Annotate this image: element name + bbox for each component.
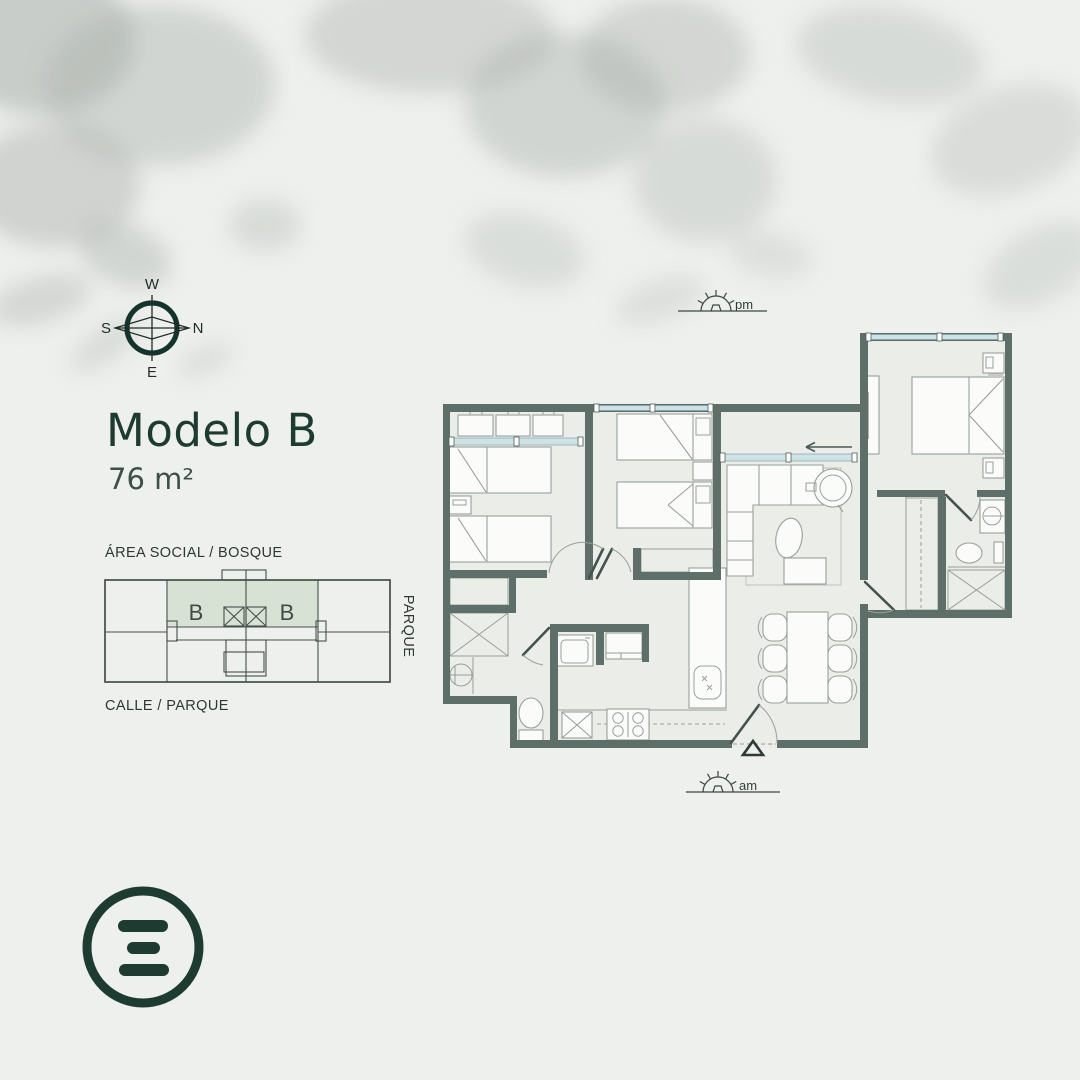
dresser <box>458 415 493 436</box>
key-plan: ÁREA SOCIAL / BOSQUE B B CALLE / PARQUE … <box>105 544 416 714</box>
kitchen-island <box>689 568 726 708</box>
toilet <box>519 698 543 728</box>
floor-plan-poster: W S N E Modelo B 76 m² ÁREA SOCIAL / BOS… <box>0 0 1080 1080</box>
toilet-tank <box>994 542 1003 563</box>
leaf-shadow-decoration <box>0 0 1080 384</box>
compass-west: W <box>145 276 160 293</box>
window <box>870 335 1001 340</box>
unit-b-left-label: B <box>189 600 204 625</box>
double-bed <box>912 377 1004 454</box>
toilet-tank <box>519 730 543 741</box>
pm-label: pm <box>735 297 753 312</box>
twin-bed <box>449 447 551 493</box>
coffee-table <box>784 558 826 584</box>
toilet <box>956 543 982 563</box>
key-plan-bottom-label: CALLE / PARQUE <box>105 698 229 714</box>
sunrise-am-icon: am <box>686 771 780 793</box>
stairs-icon <box>224 640 266 676</box>
unit-b-right-label: B <box>280 600 295 625</box>
compass-north: N <box>193 320 204 337</box>
nightstand <box>693 462 713 480</box>
page-title: Modelo B <box>106 404 318 457</box>
floor-plan: pm am <box>443 290 1012 793</box>
key-plan-top-label: ÁREA SOCIAL / BOSQUE <box>105 544 283 561</box>
dresser <box>496 415 530 436</box>
dresser <box>533 415 563 436</box>
dining-table <box>787 612 828 703</box>
stove <box>607 709 649 740</box>
key-plan-side-label: PARQUE <box>400 595 416 658</box>
twin-bed <box>449 516 551 562</box>
am-label: am <box>739 778 757 793</box>
compass-east: E <box>147 364 157 381</box>
compass-south: S <box>101 320 111 337</box>
unit-area: 76 m² <box>108 462 194 496</box>
brand-logo <box>87 891 199 1003</box>
dining-area <box>758 612 857 703</box>
refrigerator <box>606 633 642 659</box>
twin-bed <box>617 482 712 528</box>
